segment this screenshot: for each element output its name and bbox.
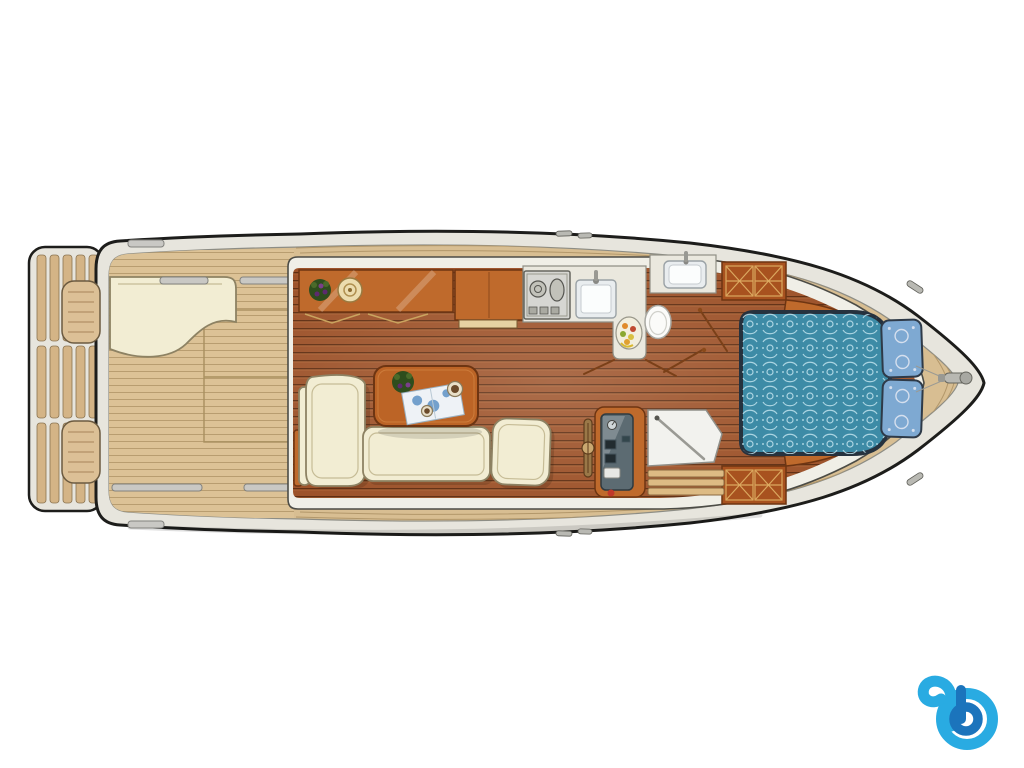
sofa-chaise <box>306 375 365 486</box>
helm-console <box>595 407 645 497</box>
steering-wheel <box>582 419 594 477</box>
stove <box>524 271 570 319</box>
fruit-bowl <box>616 317 642 349</box>
pillow-starboard <box>881 379 923 437</box>
wardrobe-port <box>722 262 786 300</box>
armchair <box>491 418 555 490</box>
companionway-steps <box>648 470 724 495</box>
head-washbasin <box>650 251 716 293</box>
pillow-port <box>881 319 923 377</box>
toilet <box>645 306 671 339</box>
plant <box>309 279 331 301</box>
wardrobe-starboard <box>722 466 786 504</box>
shower-compartment <box>648 410 722 466</box>
boat-floorplan-illustration <box>0 0 1024 768</box>
table-flowers <box>392 371 414 393</box>
cup-small <box>422 406 433 417</box>
saloon-table <box>374 366 482 439</box>
screenshot-canvas <box>0 0 1024 768</box>
upper-cabinet <box>455 270 523 328</box>
cup-large <box>448 382 463 397</box>
brand-logo-watermark <box>923 681 992 744</box>
double-bed <box>741 312 890 454</box>
table-lamp <box>338 278 362 302</box>
